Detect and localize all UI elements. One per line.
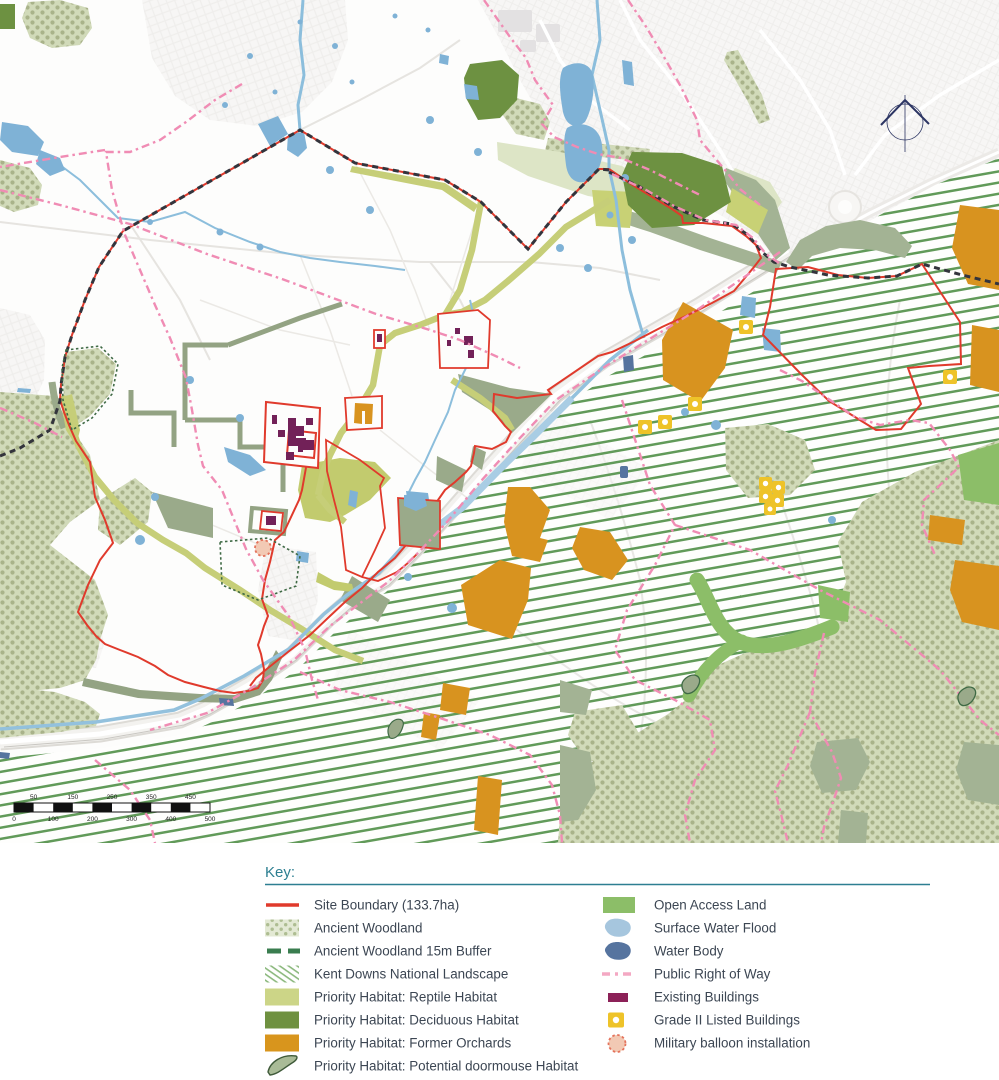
- svg-text:500: 500: [205, 816, 216, 823]
- svg-text:Ancient Woodland 15m Buffer: Ancient Woodland 15m Buffer: [314, 944, 492, 959]
- svg-text:350: 350: [146, 794, 157, 801]
- svg-text:Water Body: Water Body: [654, 944, 724, 959]
- svg-text:150: 150: [67, 794, 78, 801]
- svg-text:250: 250: [107, 794, 118, 801]
- svg-text:Open Access Land: Open Access Land: [654, 898, 766, 913]
- svg-text:Military balloon installation: Military balloon installation: [654, 1036, 810, 1051]
- svg-text:Kent Downs National Landscape: Kent Downs National Landscape: [314, 967, 508, 982]
- svg-text:200: 200: [87, 816, 98, 823]
- svg-text:Priority Habitat: Potential do: Priority Habitat: Potential doormouse Ha…: [314, 1059, 579, 1074]
- svg-text:50: 50: [30, 794, 38, 801]
- svg-text:Priority Habitat: Reptile Habi: Priority Habitat: Reptile Habitat: [314, 990, 497, 1005]
- svg-text:Priority Habitat: Former Orcha: Priority Habitat: Former Orchards: [314, 1036, 511, 1051]
- svg-text:Grade II Listed Buildings: Grade II Listed Buildings: [654, 1013, 800, 1028]
- svg-text:Public Right of Way: Public Right of Way: [654, 967, 771, 982]
- svg-text:Priority Habitat: Deciduous Ha: Priority Habitat: Deciduous Habitat: [314, 1013, 519, 1028]
- svg-text:0: 0: [12, 816, 16, 823]
- svg-text:400: 400: [165, 816, 176, 823]
- svg-text:Surface Water Flood: Surface Water Flood: [654, 921, 776, 936]
- svg-text:Existing Buildings: Existing Buildings: [654, 990, 759, 1005]
- svg-text:450: 450: [185, 794, 196, 801]
- svg-text:300: 300: [126, 816, 137, 823]
- svg-text:Ancient Woodland: Ancient Woodland: [314, 921, 422, 936]
- svg-text:100: 100: [48, 816, 59, 823]
- svg-text:Site Boundary (133.7ha): Site Boundary (133.7ha): [314, 898, 459, 913]
- svg-text:Key:: Key:: [265, 864, 295, 881]
